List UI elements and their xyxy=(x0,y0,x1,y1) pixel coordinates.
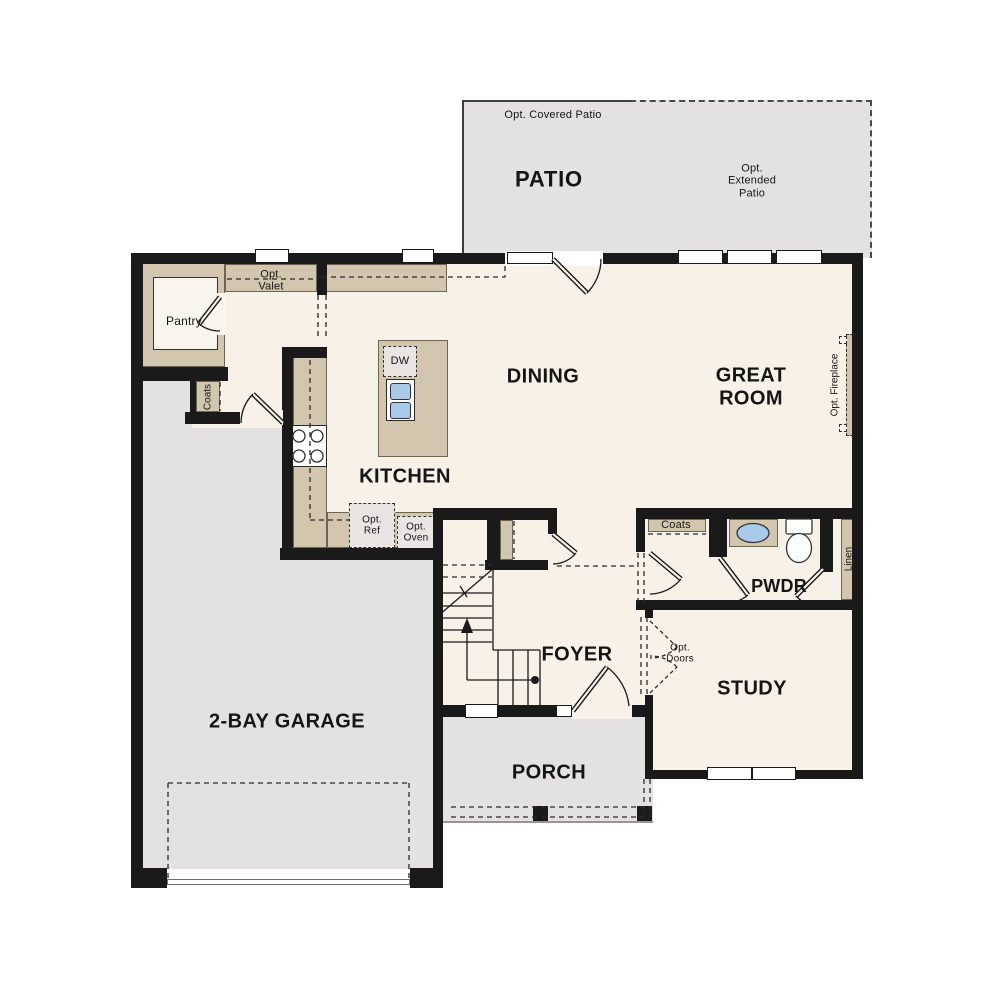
wall xyxy=(131,868,167,888)
wall xyxy=(131,253,143,888)
note-covered-patio: Opt. Covered Patio xyxy=(504,109,601,121)
window xyxy=(707,767,752,780)
pantry-door-opening xyxy=(214,293,227,335)
garage-floor xyxy=(143,428,293,888)
window xyxy=(752,767,796,780)
porch-post xyxy=(637,806,652,821)
wall xyxy=(709,519,727,557)
front-door-opening xyxy=(572,704,632,719)
stove xyxy=(289,425,327,467)
note-opt-valet: Opt. Valet xyxy=(258,269,283,294)
window xyxy=(678,250,723,264)
porch-post xyxy=(533,806,548,821)
wall xyxy=(131,367,228,381)
wall xyxy=(630,705,653,717)
note-opt-doors: Opt. Doors xyxy=(666,643,694,666)
room-label-pwdr: PWDR xyxy=(751,576,807,596)
window xyxy=(727,250,772,264)
floor-plan: PATIO Opt. Covered Patio Opt. Extended P… xyxy=(0,0,1000,1000)
wall xyxy=(636,508,863,519)
note-opt-oven: Opt. Oven xyxy=(404,522,429,545)
fireplace-notch xyxy=(839,424,847,432)
wall xyxy=(433,705,465,717)
foyer-closet-shelf xyxy=(500,520,513,560)
appliance-label-dw: DW xyxy=(391,355,410,367)
sink-basin xyxy=(390,383,411,400)
wall xyxy=(636,600,863,610)
wall xyxy=(190,378,196,414)
sink-basin xyxy=(390,402,411,419)
wall xyxy=(548,508,557,534)
fireplace-notch xyxy=(839,336,847,344)
note-opt-ref: Opt. Ref xyxy=(362,515,382,538)
closet-label-coats-hall: Coats xyxy=(661,519,691,531)
room-label-dining: DINING xyxy=(507,366,579,389)
mud-garage-door-opening xyxy=(240,410,283,425)
garage-door-panel xyxy=(167,879,410,885)
wall xyxy=(317,253,327,295)
window xyxy=(402,249,434,263)
patio-door-fixed-panel xyxy=(507,252,553,264)
room-label-kitchen: KITCHEN xyxy=(359,466,451,489)
wall xyxy=(498,705,556,717)
wall xyxy=(433,508,443,888)
window xyxy=(255,249,289,263)
wall xyxy=(487,508,500,570)
closet-label-coats-mud: Coats xyxy=(203,384,214,410)
room-label-patio: PATIO xyxy=(515,168,583,193)
wall xyxy=(280,548,443,560)
room-label-pantry: Pantry xyxy=(166,315,202,329)
wall xyxy=(820,519,833,572)
wall xyxy=(282,347,293,560)
note-extended-patio: Opt. Extended Patio xyxy=(728,162,776,199)
window xyxy=(776,250,822,264)
closet-label-linen: Linen xyxy=(844,547,855,571)
wall-counter xyxy=(317,264,447,292)
wall xyxy=(636,519,645,552)
wall xyxy=(282,347,327,358)
window xyxy=(465,704,498,718)
pwdr-vanity xyxy=(729,519,778,547)
wall xyxy=(185,412,240,424)
room-label-great-room: GREAT ROOM xyxy=(716,364,787,409)
note-opt-fireplace: Opt. Fireplace xyxy=(830,354,841,417)
room-label-porch: PORCH xyxy=(512,762,586,785)
room-label-study: STUDY xyxy=(717,678,787,701)
front-door-sidelight xyxy=(556,705,572,717)
wall xyxy=(645,610,653,618)
room-label-garage: 2-BAY GARAGE xyxy=(209,711,365,734)
room-label-foyer: FOYER xyxy=(542,644,613,667)
